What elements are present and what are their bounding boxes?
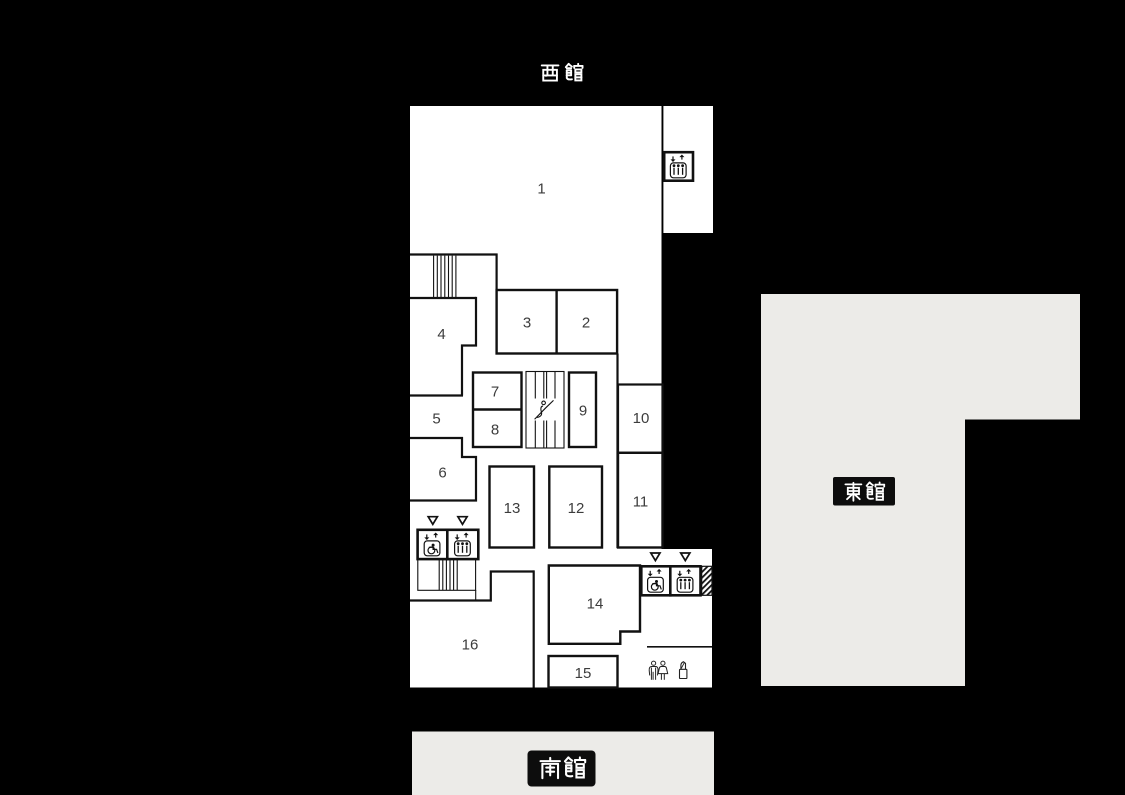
svg-text:2: 2 bbox=[582, 314, 590, 331]
svg-text:6: 6 bbox=[438, 464, 446, 481]
svg-text:15: 15 bbox=[575, 665, 592, 682]
svg-text:16: 16 bbox=[462, 636, 479, 653]
svg-text:12: 12 bbox=[568, 500, 585, 517]
svg-text:5: 5 bbox=[432, 410, 440, 427]
svg-text:14: 14 bbox=[587, 595, 604, 612]
svg-text:13: 13 bbox=[504, 500, 521, 517]
svg-text:4: 4 bbox=[437, 326, 445, 343]
svg-text:3: 3 bbox=[523, 314, 531, 331]
svg-text:11: 11 bbox=[633, 493, 649, 510]
svg-text:7: 7 bbox=[491, 383, 499, 400]
svg-text:9: 9 bbox=[579, 402, 587, 419]
svg-text:10: 10 bbox=[633, 410, 650, 427]
svg-text:8: 8 bbox=[491, 421, 499, 438]
svg-text:1: 1 bbox=[537, 180, 545, 197]
